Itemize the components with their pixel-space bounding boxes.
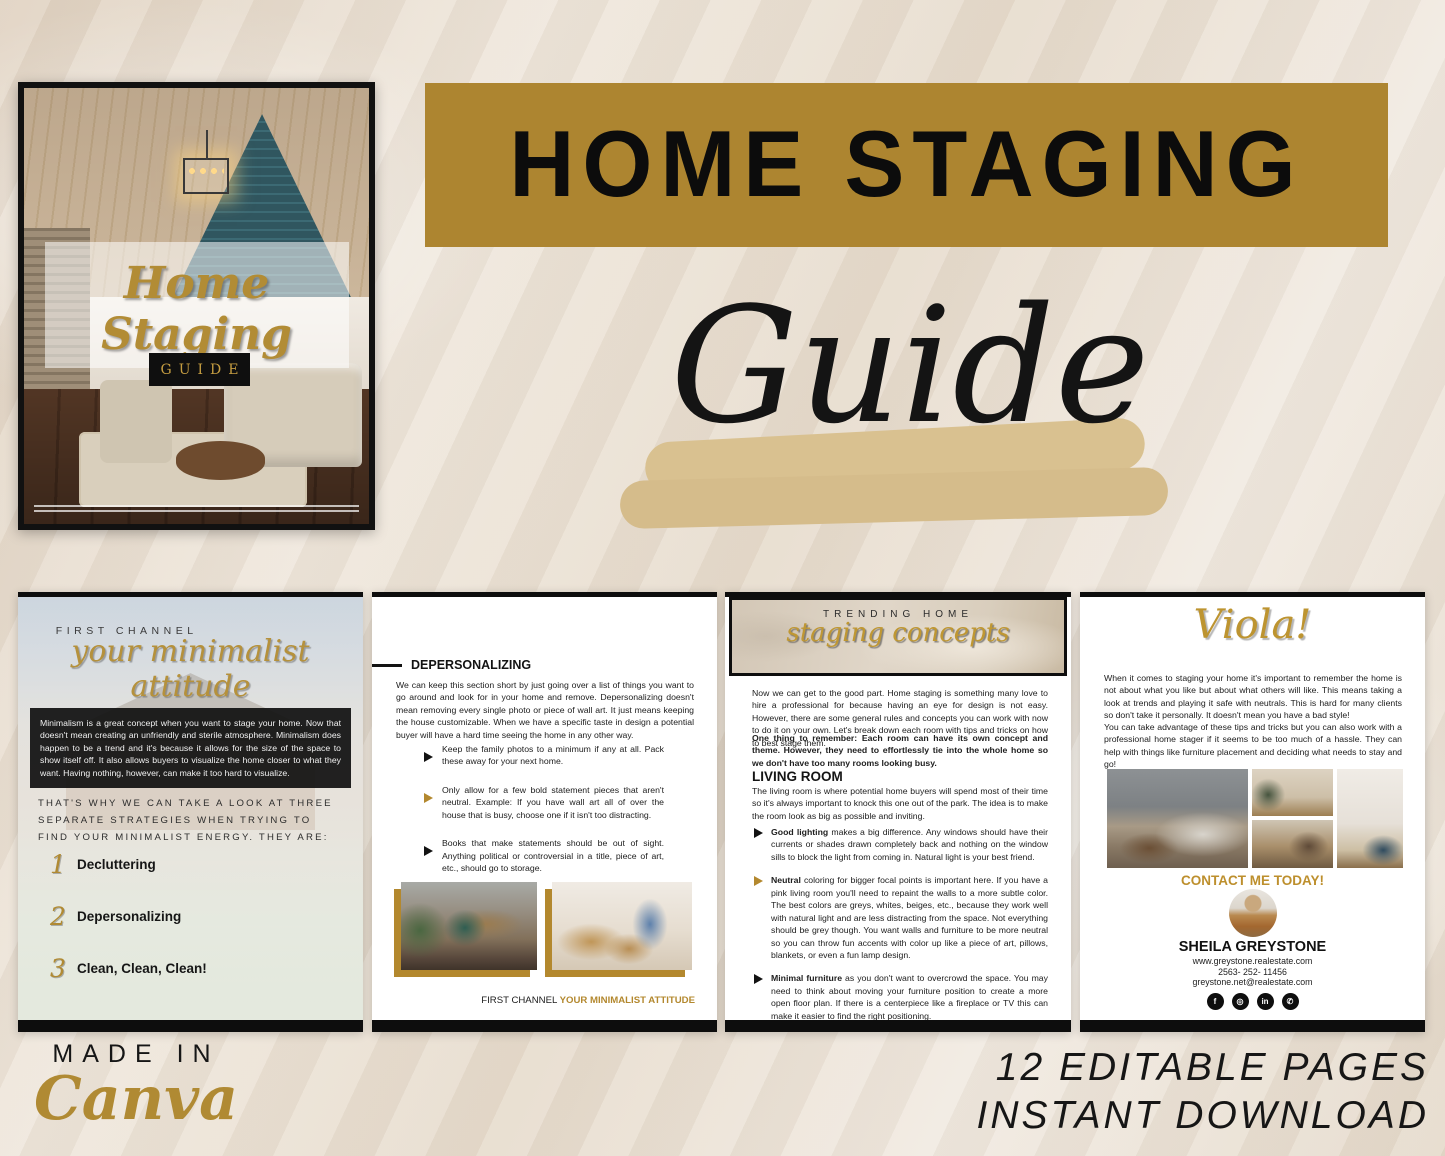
- bullet-item: Minimal furniture as you don't want to o…: [771, 972, 1048, 1022]
- made-in-canva-caption: MADE IN Canva: [22, 1040, 250, 1128]
- page4-script-title: Viola!: [1080, 602, 1425, 648]
- promo-line-download: INSTANT DOWNLOAD: [977, 1092, 1429, 1140]
- cover-script-title: Home Staging: [24, 258, 369, 360]
- page3-section-heading: LIVING ROOM: [752, 769, 843, 784]
- bullet-triangle-icon: [424, 846, 433, 856]
- agent-phone: 2563- 252- 11456: [1080, 967, 1425, 977]
- photo-living-room: [1107, 769, 1248, 868]
- cover-guide-label: GUIDE: [161, 362, 246, 378]
- page1-script-title: your minimalist attitude: [18, 634, 363, 704]
- cover-armchair: [100, 380, 172, 463]
- hero-subtitle-script: Guide: [560, 262, 1260, 470]
- whatsapp-icon: ✆: [1282, 993, 1299, 1010]
- footer-chapter: FIRST CHANNEL: [481, 995, 559, 1006]
- page-preview-minimalist-attitude: FIRST CHANNEL your minimalist attitude M…: [18, 592, 363, 1032]
- bullet-text: coloring for bigger focal points is impo…: [771, 875, 1048, 960]
- page1-intro-box: Minimalism is a great concept when you w…: [30, 708, 351, 788]
- page3-remember-note: One thing to remember: Each room can hav…: [752, 732, 1048, 769]
- page-preview-staging-concepts: TRENDING HOME staging concepts Now we ca…: [725, 592, 1071, 1032]
- hero-title-bar: HOME STAGING: [425, 83, 1388, 247]
- bullet-item: Only allow for a few bold statement piec…: [442, 784, 664, 821]
- contact-heading: CONTACT ME TODAY!: [1080, 873, 1425, 888]
- banner-script-title: staging concepts: [732, 618, 1064, 648]
- list-item: 2 Depersonalizing: [50, 902, 207, 931]
- photo-woman-moving-boxes: [552, 882, 692, 970]
- bullet-item: Neutral coloring for bigger focal points…: [771, 874, 1048, 961]
- chandelier-icon: [183, 158, 229, 194]
- bullet-item: Good lighting makes a big difference. An…: [771, 826, 1048, 863]
- canva-logo: Canva: [22, 1071, 250, 1128]
- bullet-lead: Minimal furniture: [771, 973, 842, 983]
- photo-dining-table: [1252, 820, 1333, 868]
- list-label: Depersonalizing: [77, 909, 181, 924]
- hero-title: HOME STAGING: [509, 111, 1303, 218]
- page2-bullet-list: Keep the family photos to a minimum if a…: [442, 743, 664, 891]
- page1-strategies-lead: THAT'S WHY WE CAN TAKE A LOOK AT THREE S…: [38, 796, 340, 846]
- bullet-text: Keep the family photos to a minimum if a…: [442, 744, 664, 766]
- promo-caption: 12 EDITABLE PAGES INSTANT DOWNLOAD: [977, 1044, 1429, 1139]
- heading-dash: [372, 664, 402, 667]
- list-item: 3 Clean, Clean, Clean!: [50, 954, 207, 983]
- cover-guide-badge: GUIDE: [149, 353, 250, 386]
- list-number: 3: [50, 954, 64, 983]
- bullet-triangle-icon: [424, 752, 433, 762]
- list-label: Decluttering: [77, 857, 156, 872]
- bullet-text: Only allow for a few bold statement piec…: [442, 785, 664, 820]
- instagram-icon: ◎: [1232, 993, 1249, 1010]
- photo-counter-plant: [1252, 769, 1333, 816]
- linkedin-icon: in: [1257, 993, 1274, 1010]
- agent-email: greystone.net@realestate.com: [1080, 977, 1425, 987]
- page1-intro-text: Minimalism is a great concept when you w…: [40, 717, 341, 779]
- cover-divider-lines: [34, 505, 359, 512]
- agent-name: SHEILA GREYSTONE: [1080, 939, 1425, 955]
- photo-man-packing-books: [401, 882, 537, 970]
- bullet-text: Books that make statements should be out…: [442, 838, 664, 873]
- page-preview-viola-contact: Viola! When it comes to staging your hom…: [1080, 592, 1425, 1032]
- bullet-lead: Good lighting: [771, 827, 828, 837]
- bullet-item: Books that make statements should be out…: [442, 837, 664, 874]
- cover-table: [176, 441, 266, 480]
- page3-bullet-list: Good lighting makes a big difference. An…: [771, 826, 1048, 1033]
- bullet-triangle-icon: [754, 974, 763, 984]
- page-preview-depersonalizing: DEPERSONALIZING We can keep this section…: [372, 592, 717, 1032]
- page3-section-intro: The living room is where potential home …: [752, 785, 1048, 822]
- page2-intro: We can keep this section short by just g…: [396, 679, 694, 741]
- photo-white-kitchen: [1337, 769, 1403, 868]
- list-item: 1 Decluttering: [50, 850, 207, 879]
- page3-photo-banner: TRENDING HOME staging concepts: [729, 597, 1067, 676]
- page4-paragraph: You can take advantage of these tips and…: [1104, 721, 1402, 771]
- list-number: 2: [50, 902, 64, 931]
- promo-line-pages: 12 EDITABLE PAGES: [977, 1044, 1429, 1092]
- list-label: Clean, Clean, Clean!: [77, 961, 207, 976]
- page4-paragraph: When it comes to staging your home it's …: [1104, 672, 1402, 722]
- page1-strategy-list: 1 Decluttering 2 Depersonalizing 3 Clean…: [50, 850, 207, 983]
- footer-chapter-title: YOUR MINIMALIST ATTITUDE: [560, 995, 695, 1006]
- bullet-item: Keep the family photos to a minimum if a…: [442, 743, 664, 768]
- bullet-triangle-icon: [754, 828, 763, 838]
- facebook-icon: f: [1207, 993, 1224, 1010]
- bullet-triangle-icon: [754, 876, 763, 886]
- page2-heading: DEPERSONALIZING: [411, 658, 531, 672]
- list-number: 1: [50, 850, 64, 879]
- page2-footer: FIRST CHANNEL YOUR MINIMALIST ATTITUDE: [481, 995, 695, 1006]
- avatar: [1229, 889, 1277, 937]
- cover-photo: Home Staging GUIDE: [24, 88, 369, 524]
- bullet-triangle-icon: [424, 793, 433, 803]
- cover-thumbnail: Home Staging GUIDE: [18, 82, 375, 530]
- bullet-lead: Neutral: [771, 875, 801, 885]
- social-icon-row: f ◎ in ✆: [1080, 993, 1425, 1010]
- page2-heading-row: DEPERSONALIZING: [372, 658, 531, 672]
- agent-website: www.greystone.realestate.com: [1080, 956, 1425, 966]
